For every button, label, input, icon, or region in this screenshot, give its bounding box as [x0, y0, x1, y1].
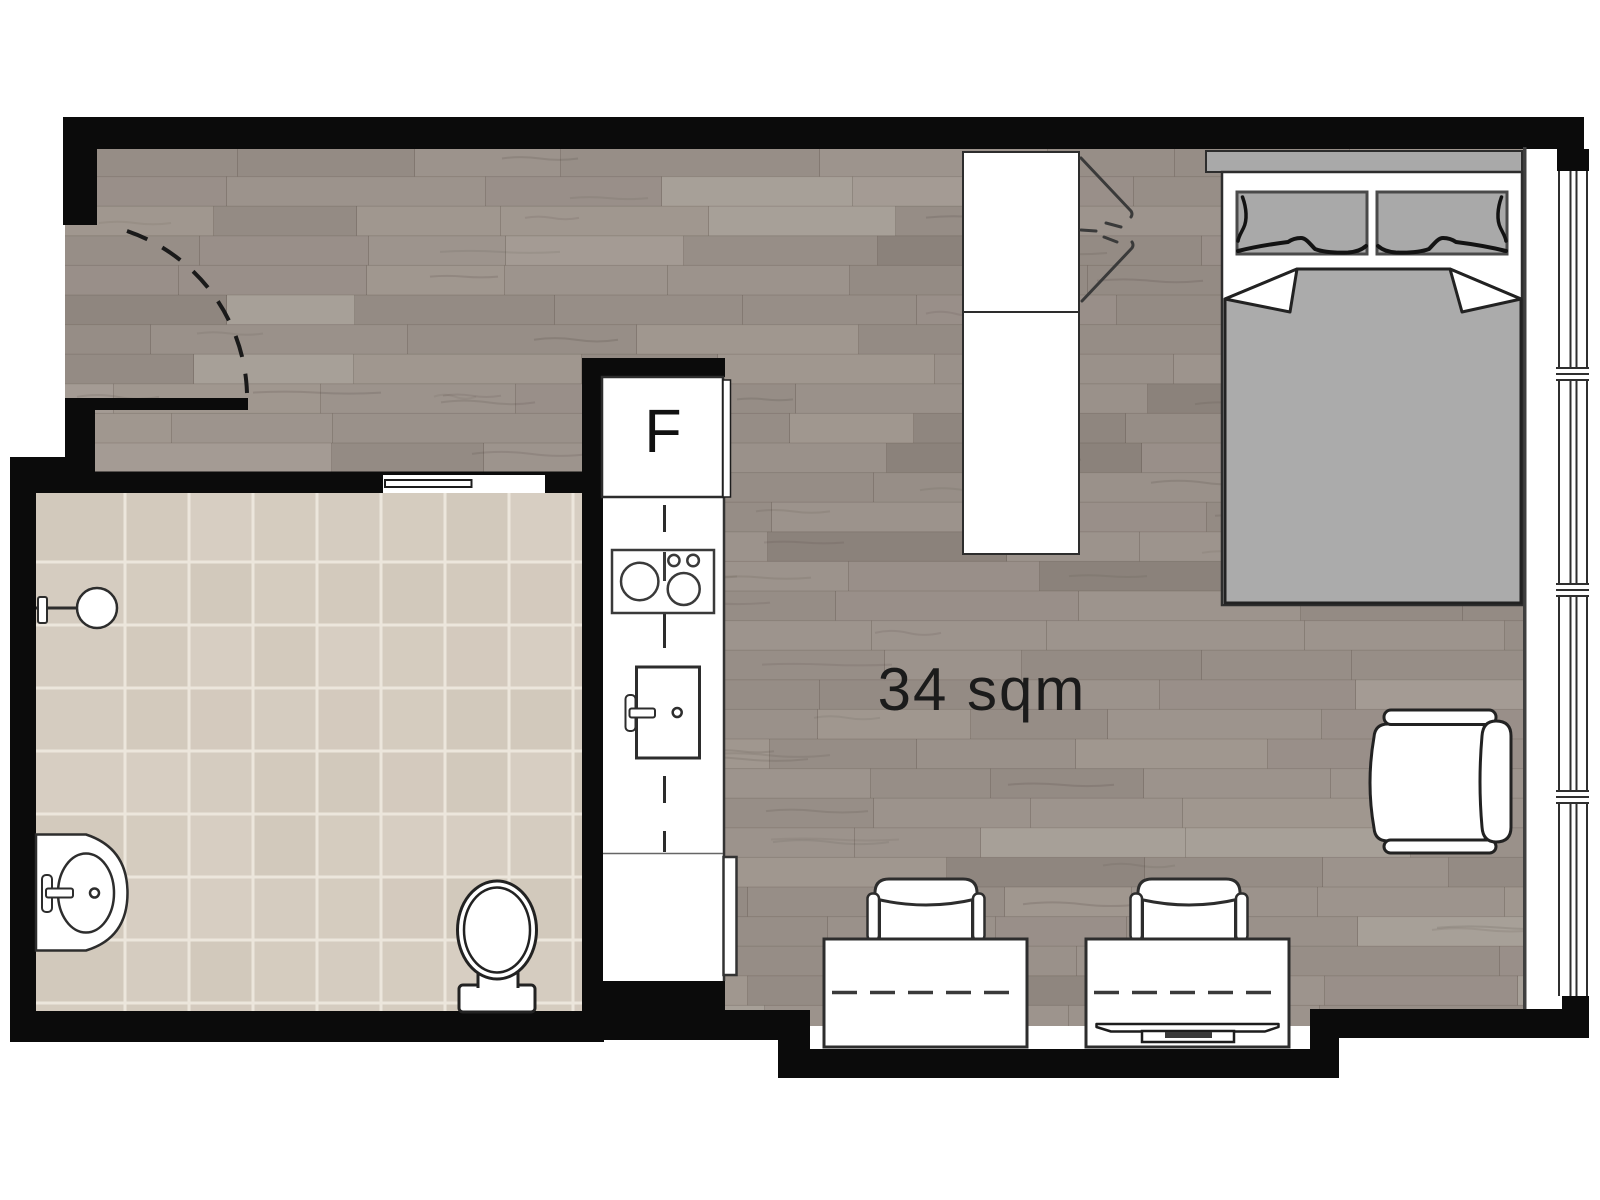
svg-text:F: F — [644, 397, 681, 465]
svg-text:34 sqm: 34 sqm — [878, 656, 1087, 723]
